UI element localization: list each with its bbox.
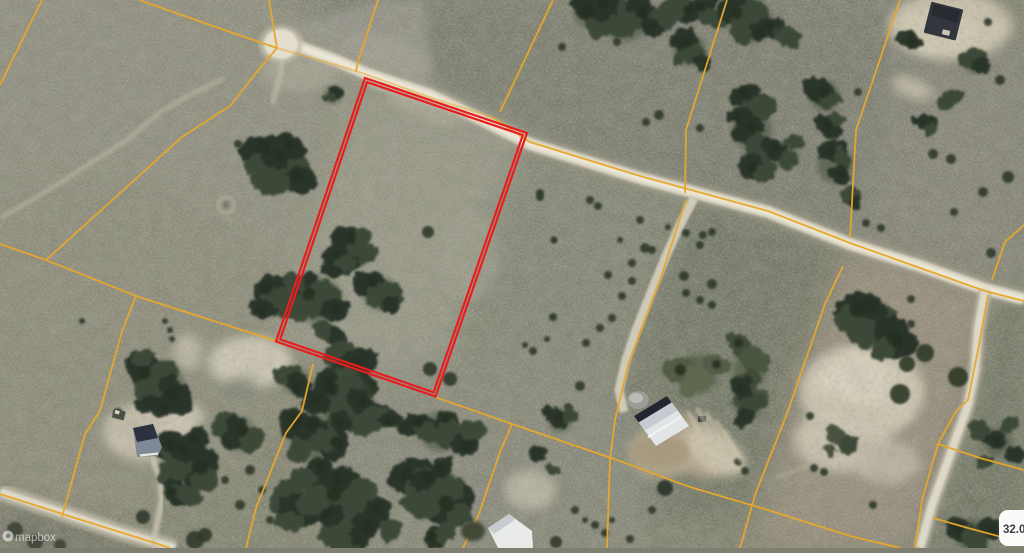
svg-text:mapbox: mapbox bbox=[15, 532, 56, 544]
svg-text:32.0: 32.0 bbox=[1003, 524, 1024, 536]
